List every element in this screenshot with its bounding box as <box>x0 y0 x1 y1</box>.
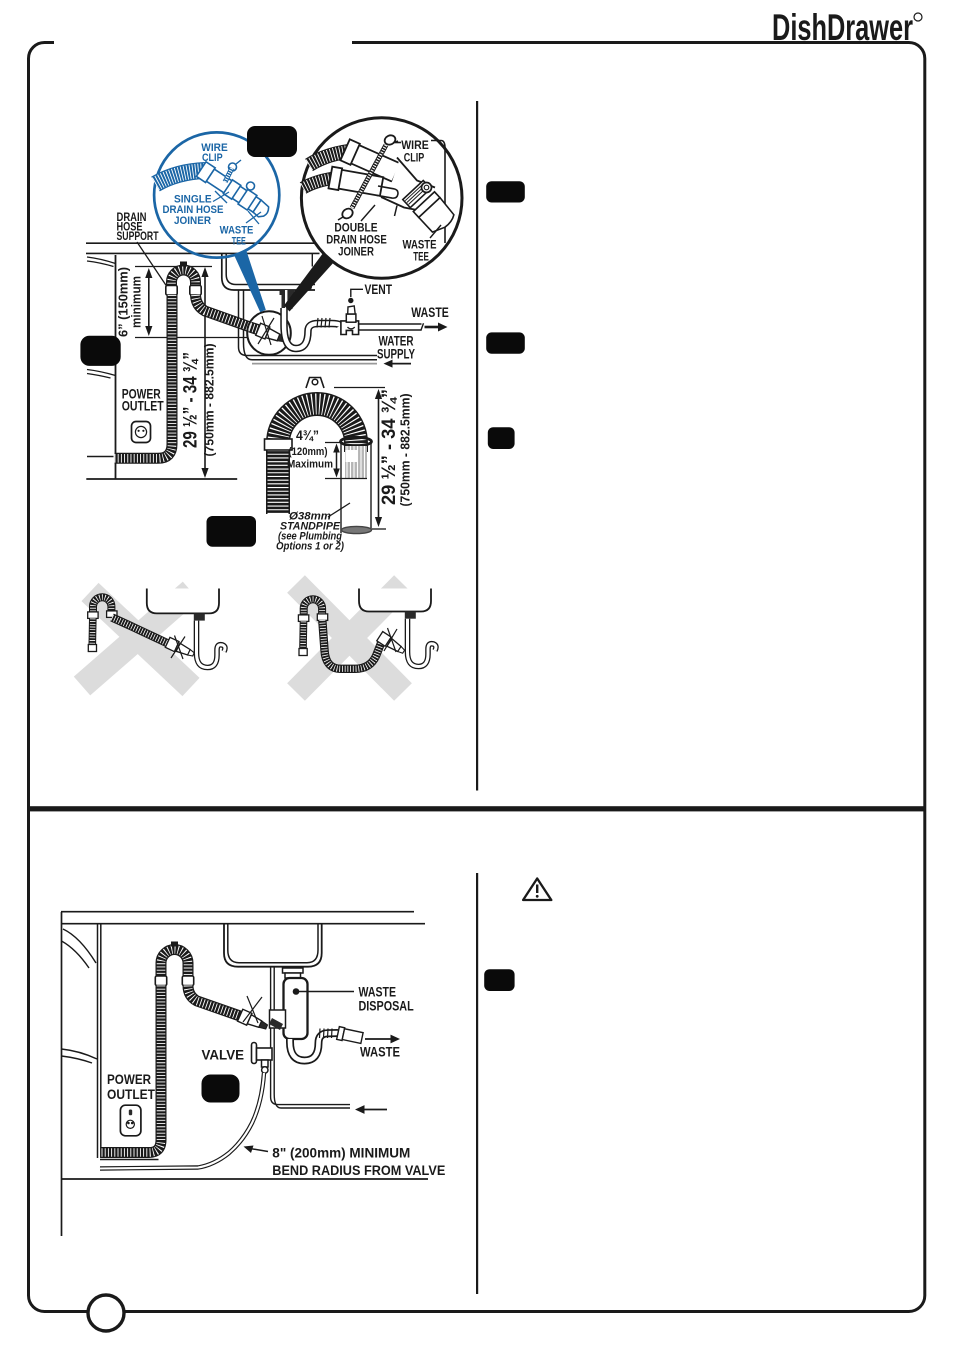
svg-text:OUTLET: OUTLET <box>107 1087 156 1102</box>
svg-text:CLIP: CLIP <box>404 151 425 165</box>
svg-text:OUTLET: OUTLET <box>122 399 165 414</box>
svg-text:WASTE: WASTE <box>411 305 449 320</box>
svg-text:(750mm - 882.5mm): (750mm - 882.5mm) <box>399 394 413 507</box>
svg-text:SUPPLY: SUPPLY <box>377 347 415 362</box>
svg-text:(120mm): (120mm) <box>289 446 328 458</box>
svg-text:minimum: minimum <box>129 276 144 328</box>
svg-text:JOINER: JOINER <box>338 245 374 259</box>
svg-text:4¾”: 4¾” <box>296 428 319 443</box>
svg-text:WASTE: WASTE <box>359 985 397 1000</box>
svg-text:POWER: POWER <box>107 1072 151 1087</box>
svg-text:TEE: TEE <box>232 236 246 248</box>
svg-text:SUPPORT: SUPPORT <box>117 230 159 243</box>
svg-text:WASTE: WASTE <box>360 1045 400 1060</box>
svg-text:BEND RADIUS FROM VALVE: BEND RADIUS FROM VALVE <box>272 1163 445 1178</box>
svg-text:Options 1 or 2): Options 1 or 2) <box>276 541 344 553</box>
svg-text:8" (200mm) MINIMUM: 8" (200mm) MINIMUM <box>272 1146 410 1161</box>
svg-text:TEE: TEE <box>413 250 429 264</box>
svg-text:29 ½” - 34 ¾”: 29 ½” - 34 ¾” <box>379 389 400 505</box>
svg-text:JOINER: JOINER <box>174 215 211 227</box>
svg-text:29 ½” - 34 ¾”: 29 ½” - 34 ¾” <box>181 352 202 448</box>
svg-text:Maximum: Maximum <box>287 459 333 471</box>
svg-text:VALVE: VALVE <box>202 1048 245 1063</box>
svg-text:VENT: VENT <box>365 282 393 297</box>
svg-text:(750mm - 882.5mm): (750mm - 882.5mm) <box>203 344 217 457</box>
svg-text:DISPOSAL: DISPOSAL <box>359 999 414 1014</box>
svg-text:CLIP: CLIP <box>202 152 223 164</box>
